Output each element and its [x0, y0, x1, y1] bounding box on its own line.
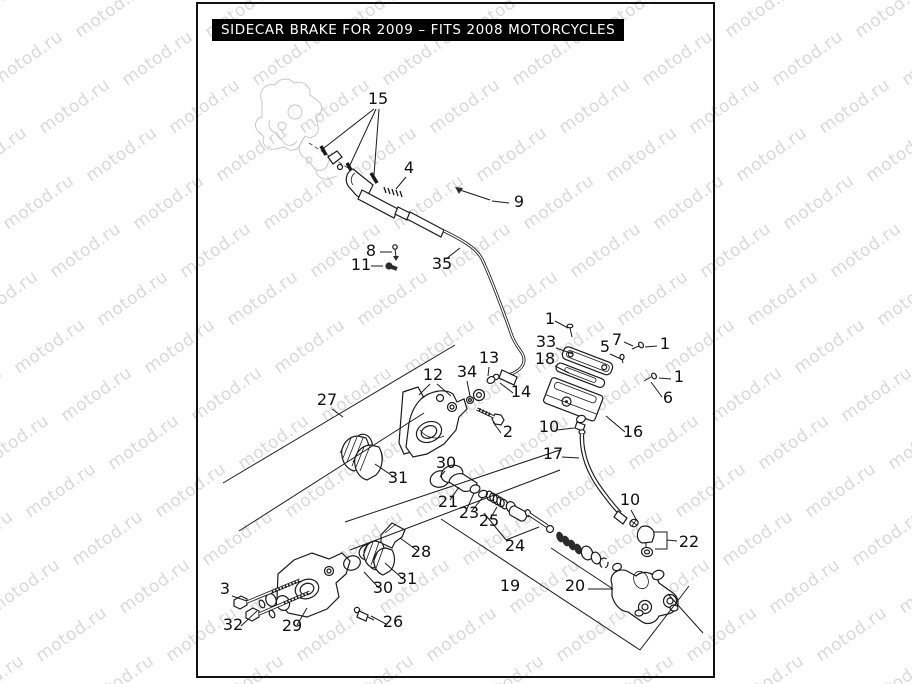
catalog-page: motod.rumotod.rumotod.rumotod.rumotod.ru… — [0, 0, 912, 684]
diagram-frame — [196, 2, 715, 678]
page-title: SIDECAR BRAKE FOR 2009 – FITS 2008 MOTOR… — [212, 19, 624, 41]
